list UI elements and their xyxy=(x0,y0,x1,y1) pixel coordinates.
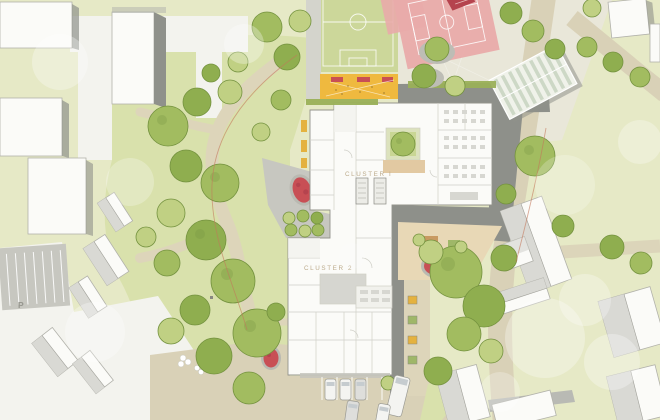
tree xyxy=(154,250,180,276)
context-building-w-slab xyxy=(28,158,93,236)
car xyxy=(325,379,336,400)
tree xyxy=(500,2,522,24)
tree xyxy=(491,245,517,271)
tree xyxy=(496,184,516,204)
cluster-1-label: CLUSTER I xyxy=(345,171,392,178)
tree xyxy=(412,64,436,88)
parking-label: P xyxy=(18,300,24,310)
tree xyxy=(545,39,565,59)
tree xyxy=(180,295,210,325)
tree xyxy=(186,220,226,260)
site-plan-image: P xyxy=(0,0,660,420)
tree xyxy=(479,339,503,363)
context-building-nw-tall xyxy=(112,7,166,108)
courtyard-cluster1 xyxy=(383,128,425,173)
tree xyxy=(445,76,465,96)
room-tint xyxy=(288,238,320,258)
tree xyxy=(274,44,300,70)
room-tint xyxy=(334,103,356,132)
tree xyxy=(413,234,425,246)
tree xyxy=(211,259,255,303)
tree xyxy=(630,67,650,87)
context-building-ne-flat xyxy=(608,0,656,40)
tree xyxy=(455,241,467,253)
south-canopy xyxy=(300,373,390,378)
tree xyxy=(252,123,270,141)
context-building-w-1 xyxy=(0,98,69,158)
tree xyxy=(201,164,239,202)
tree xyxy=(425,37,449,61)
tree xyxy=(583,0,601,17)
context-building-ne-sliver xyxy=(650,24,660,62)
tree xyxy=(603,52,623,72)
tree xyxy=(271,90,291,110)
tree xyxy=(289,10,311,32)
tree xyxy=(552,215,574,237)
tree xyxy=(233,372,265,404)
tree xyxy=(522,20,544,42)
tree xyxy=(267,303,285,321)
car xyxy=(355,379,366,400)
tree xyxy=(170,150,202,182)
tree xyxy=(424,357,452,385)
tree xyxy=(136,227,156,247)
small-parking-lot xyxy=(0,244,70,311)
tree xyxy=(600,235,624,259)
tree xyxy=(202,64,220,82)
tree xyxy=(218,80,242,104)
car xyxy=(340,379,351,400)
seminar-room xyxy=(356,286,392,308)
hedge-north-west xyxy=(306,99,378,105)
tree xyxy=(630,252,652,274)
tree xyxy=(183,88,211,116)
tree xyxy=(158,318,184,344)
masterplan-svg: P xyxy=(0,0,660,420)
tree xyxy=(577,37,597,57)
tree xyxy=(447,317,481,351)
tree xyxy=(157,199,185,227)
tree xyxy=(148,106,188,146)
play-strip xyxy=(320,74,398,99)
courtyard-tree xyxy=(391,132,415,156)
tree xyxy=(196,338,232,374)
bench-row-west xyxy=(301,120,307,168)
